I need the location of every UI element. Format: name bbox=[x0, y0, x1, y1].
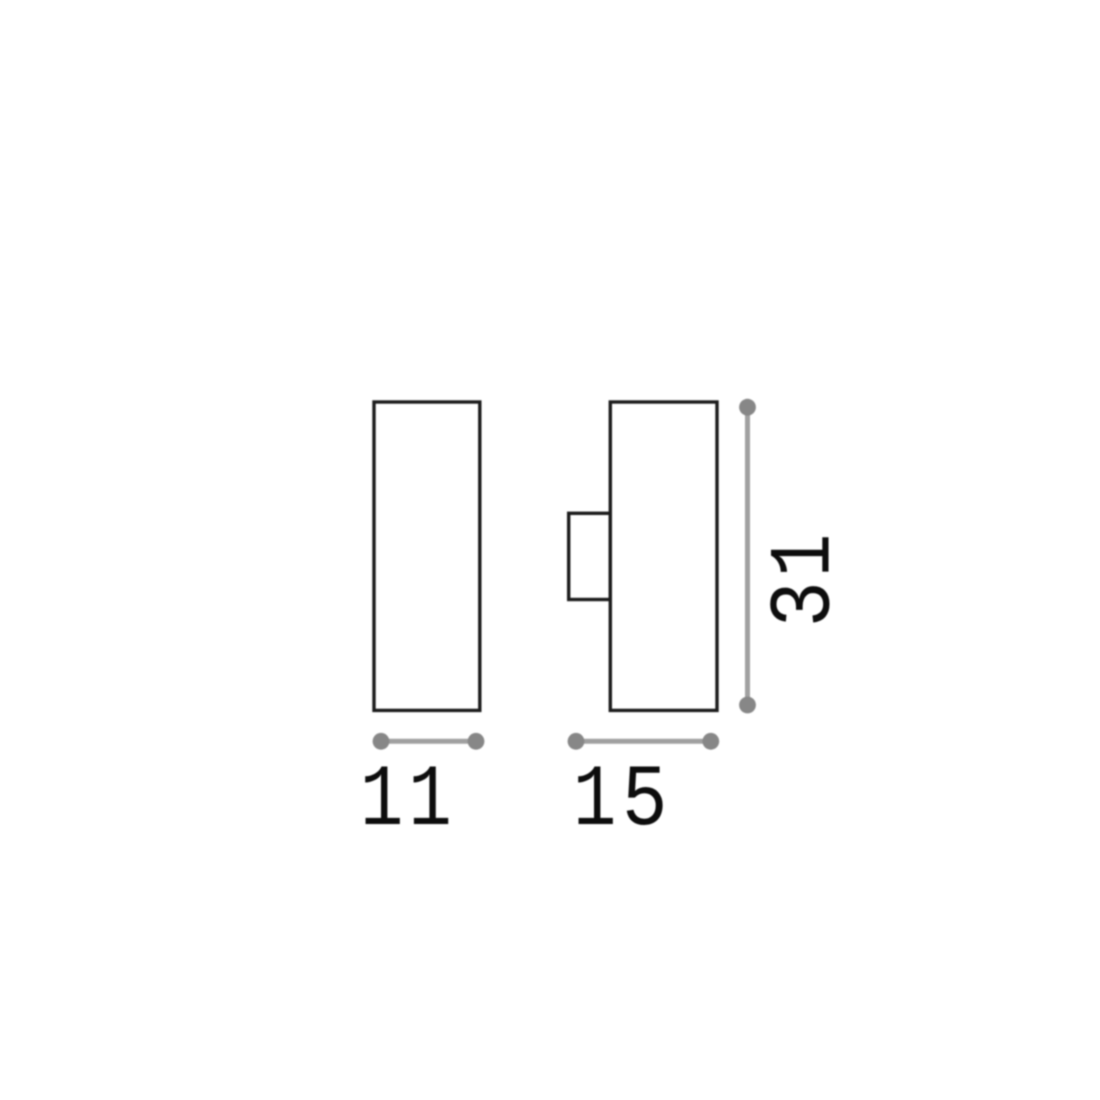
svg-text:1: 1 bbox=[408, 752, 451, 851]
svg-text:5: 5 bbox=[622, 753, 667, 851]
svg-text:1: 1 bbox=[360, 752, 403, 851]
svg-text:1: 1 bbox=[757, 534, 856, 577]
svg-text:1: 1 bbox=[573, 752, 616, 851]
svg-text:3: 3 bbox=[756, 581, 855, 627]
